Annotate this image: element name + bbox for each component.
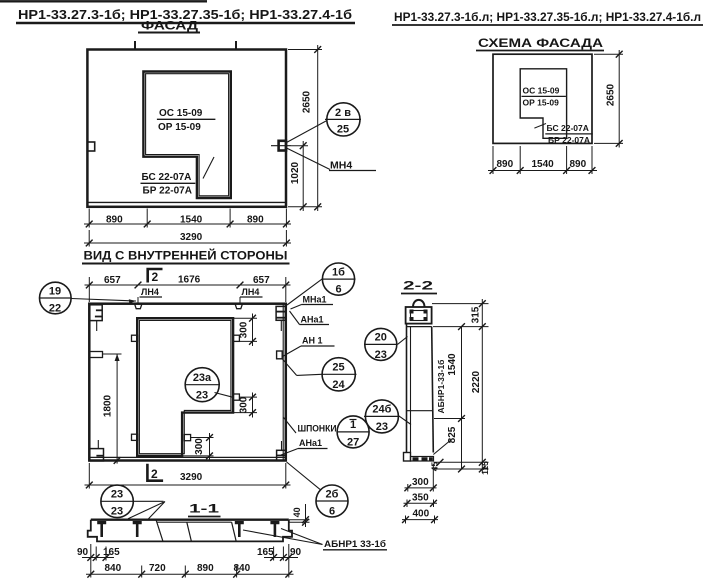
svg-text:МН4: МН4 xyxy=(330,160,352,172)
svg-text:24б: 24б xyxy=(372,404,391,416)
svg-text:2650: 2650 xyxy=(606,83,617,106)
svg-text:1800: 1800 xyxy=(103,394,114,417)
svg-text:БР 22-07А: БР 22-07А xyxy=(548,135,590,145)
svg-text:300: 300 xyxy=(239,396,250,413)
svg-text:840: 840 xyxy=(234,563,251,574)
svg-text:300: 300 xyxy=(412,477,429,488)
svg-text:300: 300 xyxy=(239,321,250,338)
svg-text:ОР 15-09: ОР 15-09 xyxy=(523,98,560,108)
svg-text:ФАСАД: ФАСАД xyxy=(141,19,199,33)
svg-text:890: 890 xyxy=(197,563,214,574)
svg-text:2: 2 xyxy=(152,270,159,284)
svg-text:АН 1: АН 1 xyxy=(302,336,323,346)
svg-text:2: 2 xyxy=(151,467,158,481)
svg-text:ЛН4: ЛН4 xyxy=(242,287,260,297)
svg-text:НР1-33.27.3-1б.л; НР1-33.27.35: НР1-33.27.3-1б.л; НР1-33.27.35-1б.л; НР1… xyxy=(394,10,701,24)
svg-text:3290: 3290 xyxy=(180,232,203,243)
svg-text:23: 23 xyxy=(111,506,123,518)
svg-text:БС 22-07А: БС 22-07А xyxy=(547,123,589,133)
svg-text:1540: 1540 xyxy=(532,159,555,170)
svg-text:ВИД С ВНУТРЕННЕЙ СТОРОНЫ: ВИД С ВНУТРЕННЕЙ СТОРОНЫ xyxy=(84,248,288,263)
svg-text:315: 315 xyxy=(471,306,482,323)
svg-text:ШПОНКИ: ШПОНКИ xyxy=(298,424,337,434)
svg-text:19: 19 xyxy=(49,286,61,298)
svg-text:2б: 2б xyxy=(326,489,339,501)
svg-text:2220: 2220 xyxy=(471,370,482,393)
svg-text:890: 890 xyxy=(247,215,264,226)
svg-text:115: 115 xyxy=(480,461,490,475)
svg-text:825: 825 xyxy=(447,426,458,443)
svg-text:АНа1: АНа1 xyxy=(299,438,322,448)
svg-text:МНа1: МНа1 xyxy=(303,295,327,305)
svg-text:1540: 1540 xyxy=(447,353,458,376)
svg-text:25: 25 xyxy=(332,362,344,374)
svg-text:165: 165 xyxy=(103,547,120,558)
svg-text:3290: 3290 xyxy=(180,472,203,483)
svg-text:890: 890 xyxy=(497,159,514,170)
svg-text:23: 23 xyxy=(196,390,208,402)
svg-text:6: 6 xyxy=(335,284,341,296)
svg-text:657: 657 xyxy=(104,275,121,286)
svg-text:БР 22-07А: БР 22-07А xyxy=(143,186,192,197)
svg-text:СХЕМА ФАСАДА: СХЕМА ФАСАДА xyxy=(478,36,603,50)
svg-text:1676: 1676 xyxy=(178,275,201,286)
svg-text:2-2: 2-2 xyxy=(403,279,434,293)
svg-text:6: 6 xyxy=(329,506,335,518)
svg-text:2 в: 2 в xyxy=(335,107,351,119)
svg-text:840: 840 xyxy=(105,563,122,574)
svg-text:2650: 2650 xyxy=(302,90,313,113)
svg-text:23а: 23а xyxy=(193,372,212,384)
svg-text:1-1: 1-1 xyxy=(189,502,220,516)
svg-text:АБНР1-33-1б: АБНР1-33-1б xyxy=(436,360,446,414)
svg-text:657: 657 xyxy=(253,275,270,286)
svg-text:23: 23 xyxy=(376,421,388,433)
svg-text:27: 27 xyxy=(347,437,359,449)
svg-text:40: 40 xyxy=(292,507,302,517)
svg-text:400: 400 xyxy=(413,509,430,520)
svg-text:90: 90 xyxy=(77,547,89,558)
svg-text:720: 720 xyxy=(149,563,166,574)
svg-text:350: 350 xyxy=(412,493,429,504)
svg-text:24: 24 xyxy=(332,379,345,391)
svg-text:890: 890 xyxy=(570,159,587,170)
svg-text:90: 90 xyxy=(290,547,302,558)
svg-text:23: 23 xyxy=(111,489,123,501)
svg-text:300: 300 xyxy=(194,438,205,455)
svg-text:БС 22-07А: БС 22-07А xyxy=(142,172,192,183)
svg-text:165: 165 xyxy=(257,547,274,558)
svg-text:23: 23 xyxy=(375,349,387,361)
svg-text:АНа1: АНа1 xyxy=(301,315,324,325)
svg-text:ЛН4: ЛН4 xyxy=(141,287,159,297)
svg-text:ОС 15-09: ОС 15-09 xyxy=(159,108,203,119)
svg-text:ОР 15-09: ОР 15-09 xyxy=(158,122,201,133)
svg-text:890: 890 xyxy=(106,215,123,226)
svg-text:45: 45 xyxy=(430,462,440,472)
svg-text:АБНР1 33-1б: АБНР1 33-1б xyxy=(324,539,386,549)
svg-text:20: 20 xyxy=(375,332,387,344)
svg-text:25: 25 xyxy=(337,124,349,136)
svg-text:1: 1 xyxy=(350,419,356,431)
svg-text:22: 22 xyxy=(49,303,61,315)
svg-text:1540: 1540 xyxy=(180,215,203,226)
svg-text:1б: 1б xyxy=(332,267,345,279)
svg-text:ОС 15-09: ОС 15-09 xyxy=(523,86,560,96)
svg-text:1020: 1020 xyxy=(290,161,301,184)
